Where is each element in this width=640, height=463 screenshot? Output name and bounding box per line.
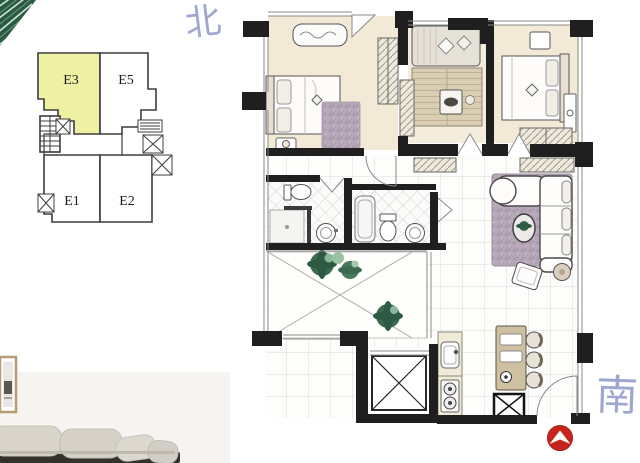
desk: [530, 32, 550, 49]
double-bed: [502, 54, 569, 122]
dining-table: [496, 326, 526, 390]
wall-frame-photo: [0, 357, 16, 412]
vent-shaft-icon: [138, 120, 162, 132]
stove-icon: [441, 380, 459, 412]
key-plan-label-e1[interactable]: E1: [64, 194, 80, 209]
toilet-icon: [380, 214, 396, 241]
dining-chair-icon: [526, 332, 542, 388]
side-table: [554, 264, 571, 281]
screenshot-canvas: E3 E5 E1 E2 北 南: [0, 0, 640, 463]
entrance-marker: [548, 426, 573, 451]
shoe-cabinet: [414, 158, 456, 172]
key-plan-unit-e2[interactable]: [100, 155, 152, 222]
kitchen: [438, 332, 462, 418]
toilet-icon: [284, 185, 311, 201]
sink-icon: [406, 224, 425, 243]
kitchen-sink-icon: [441, 342, 459, 368]
compass-south-label: 南: [595, 371, 639, 419]
elevator-shaft: [368, 348, 429, 414]
bench: [293, 24, 347, 46]
nightstand: [564, 94, 576, 132]
compass-north-label: 北: [183, 0, 224, 44]
floor-plan: [241, 5, 598, 451]
key-plan-label-e5[interactable]: E5: [118, 73, 134, 88]
coffee-table: [513, 214, 535, 242]
key-plan-label-e2[interactable]: E2: [119, 194, 135, 209]
daybed: [412, 26, 480, 66]
shaft-box-icon: [494, 394, 524, 418]
floorplan-scene: E3 E5 E1 E2 北 南: [0, 0, 640, 463]
closet: [400, 80, 414, 136]
key-plan-label-e3[interactable]: E3: [63, 73, 79, 88]
study-room: [400, 26, 482, 136]
balcony: [268, 249, 427, 338]
tv-console: [520, 158, 574, 172]
bathtub-icon: [355, 196, 375, 242]
bedroom-rug: [322, 102, 360, 148]
